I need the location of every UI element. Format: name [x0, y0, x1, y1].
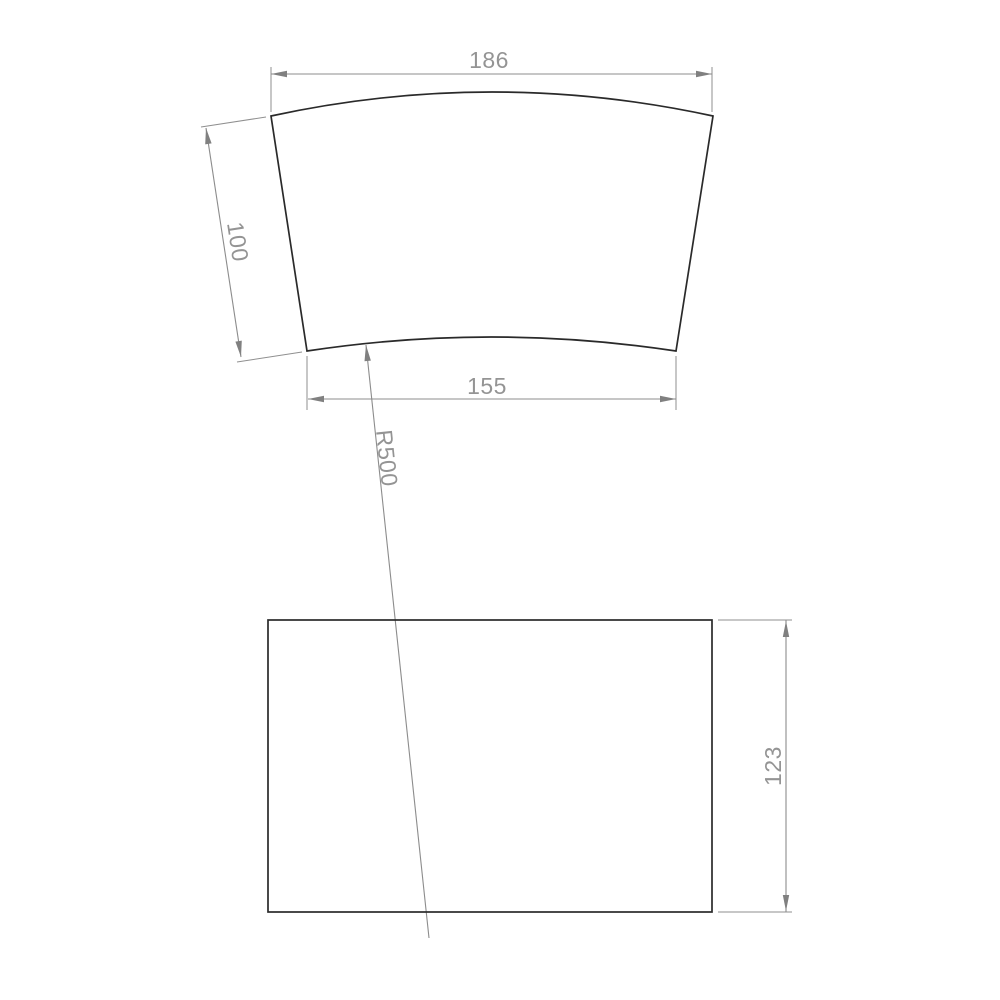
dim-slant-height: 100 — [201, 117, 302, 362]
arrowhead-icon — [365, 345, 371, 361]
radius-leader: R500 — [365, 345, 430, 938]
radius-label: R500 — [371, 428, 403, 487]
dim-rect-height: 123 — [718, 620, 792, 912]
dim-top-width: 186 — [271, 47, 712, 112]
arrowhead-right-icon — [696, 71, 712, 77]
dim-slant-height-label: 100 — [222, 220, 254, 263]
flat-pattern-view — [271, 92, 713, 351]
arrowhead-top-icon — [783, 621, 789, 637]
rectangle-outline — [268, 620, 712, 912]
technical-drawing: 186 100 155 R500 — [0, 0, 1000, 1000]
arrowhead-bottom-icon — [783, 895, 789, 911]
dim-top-width-label: 186 — [469, 47, 509, 73]
arrowhead-left-icon — [308, 396, 324, 402]
annular-sector-outline — [271, 92, 713, 351]
extension-line — [201, 117, 266, 127]
drawing-canvas: 186 100 155 R500 — [0, 0, 1000, 1000]
dim-rect-height-label: 123 — [760, 746, 786, 786]
dim-bottom-width-label: 155 — [467, 373, 507, 399]
rectangle-view — [268, 620, 712, 912]
dim-bottom-width: 155 — [307, 356, 676, 410]
arrowhead-left-icon — [271, 71, 287, 77]
arrowhead-top-icon — [205, 128, 211, 144]
extension-line — [237, 352, 302, 362]
arrowhead-bottom-icon — [235, 341, 241, 357]
arrowhead-right-icon — [660, 396, 676, 402]
